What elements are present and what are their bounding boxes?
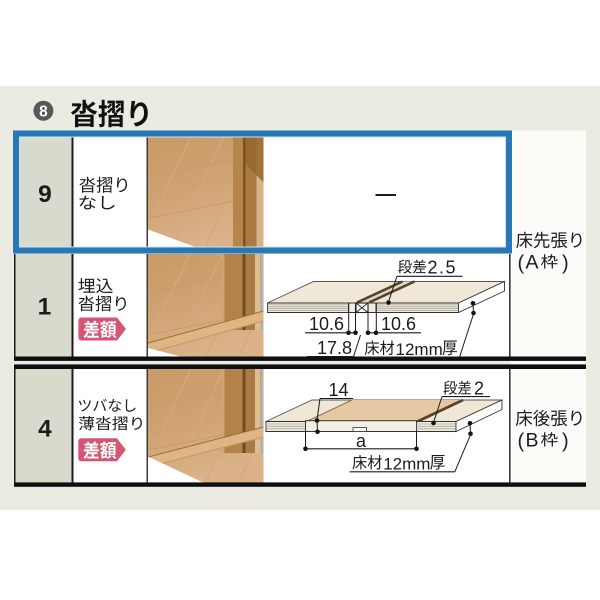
svg-text:): )	[562, 253, 569, 275]
svg-text:): )	[562, 431, 569, 453]
svg-text:a: a	[356, 431, 367, 451]
svg-text:2: 2	[474, 378, 484, 398]
svg-text:B: B	[526, 430, 539, 452]
svg-text:A: A	[526, 252, 539, 274]
svg-text:4: 4	[38, 416, 52, 443]
svg-text:10.6: 10.6	[309, 314, 344, 334]
svg-text:10.6: 10.6	[381, 314, 416, 334]
svg-text:1: 1	[38, 294, 52, 321]
svg-text:2.5: 2.5	[428, 257, 458, 277]
svg-text:17.8: 17.8	[317, 338, 352, 358]
svg-text:8: 8	[39, 103, 48, 120]
svg-text:14: 14	[329, 380, 349, 400]
svg-text:12mm: 12mm	[383, 455, 430, 474]
svg-text:(: (	[518, 431, 525, 453]
svg-text:(: (	[518, 253, 525, 275]
svg-text:12mm: 12mm	[396, 340, 443, 359]
svg-text:9: 9	[38, 181, 52, 208]
